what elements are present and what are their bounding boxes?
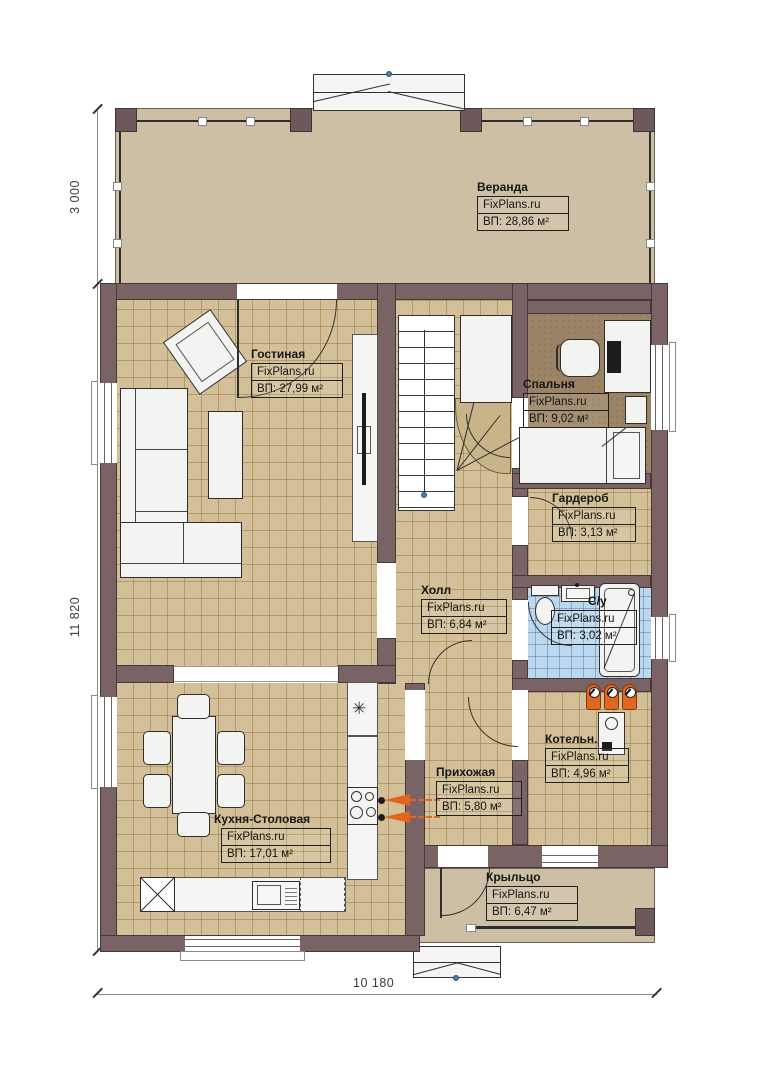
gas-line-dashed [410, 816, 440, 818]
room-label-hall: Холл FixPlans.ru ВП: 6,84 м² [421, 583, 507, 634]
watermark: FixPlans.ru [546, 749, 628, 765]
room-area: ВП: 9,02 м² [524, 410, 608, 427]
room-label-veranda: Веранда FixPlans.ru ВП: 28,86 м² [477, 180, 569, 231]
watermark: FixPlans.ru [222, 829, 330, 845]
burner [350, 806, 363, 819]
stair-direction-line [424, 330, 425, 495]
gas-manifold-icon [622, 684, 637, 710]
dining-chair [177, 694, 210, 719]
window-bathroom [651, 617, 668, 659]
window-bedroom [651, 345, 668, 430]
stair-direction-node [421, 492, 427, 498]
gas-flame-icon [384, 811, 410, 823]
room-info-box: FixPlans.ru ВП: 3,02 м² [551, 610, 637, 645]
dining-chair [217, 774, 245, 808]
wall-living-kitchen-a [116, 665, 174, 683]
room-area: ВП: 3,13 м² [553, 524, 635, 541]
veranda-post [115, 108, 137, 132]
wall-living-hall-a [377, 283, 396, 563]
room-label-entry: Прихожая FixPlans.ru ВП: 5,80 м² [436, 765, 522, 816]
dining-chair [143, 774, 171, 808]
passage-living-kitchen [174, 666, 338, 682]
room-info-box: FixPlans.ru ВП: 9,02 м² [523, 393, 609, 428]
kitchen-counter [347, 824, 378, 880]
room-info-box: FixPlans.ru ВП: 28,86 м² [477, 196, 569, 231]
room-name: Холл [421, 583, 507, 598]
burner [366, 807, 376, 817]
porch-post [635, 908, 655, 936]
watermark: FixPlans.ru [524, 394, 608, 410]
room-label-living: Гостиная FixPlans.ru ВП: 27,99 м² [251, 347, 343, 398]
bed-blanket-line [606, 428, 607, 483]
kitchen-counter [347, 736, 378, 788]
wall-living-kitchen-b [338, 665, 396, 683]
room-area: ВП: 4,96 м² [546, 765, 628, 782]
room-label-wardrobe: Гардероб FixPlans.ru ВП: 3,13 м² [552, 491, 636, 542]
dining-chair [177, 812, 210, 837]
veranda-railing [137, 120, 292, 122]
room-info-box: FixPlans.ru ВП: 17,01 м² [221, 828, 331, 863]
watermark: FixPlans.ru [553, 508, 635, 524]
sofa-front-line [121, 563, 241, 564]
desk-chair-seat [560, 339, 600, 377]
room-label-boiler: Котельн. FixPlans.ru ВП: 4,96 м² [545, 732, 629, 783]
window-sill [180, 951, 305, 961]
room-info-box: FixPlans.ru ВП: 4,96 м² [545, 748, 629, 783]
sink-drainboard [285, 885, 297, 905]
watermark: FixPlans.ru [478, 197, 568, 213]
dining-chair [217, 731, 245, 765]
railing-baluster [523, 117, 532, 126]
room-info-box: FixPlans.ru ВП: 27,99 м² [251, 363, 343, 398]
door-opening-living-hall [377, 563, 396, 638]
armchair-seat-line [175, 322, 234, 383]
dim-line-left [97, 110, 98, 952]
boiler-dial [605, 717, 618, 730]
vent-symbol: ✳ [352, 700, 366, 717]
steps-node [386, 71, 392, 77]
window-sill [91, 695, 98, 789]
railing-baluster [113, 239, 122, 248]
veranda-post [290, 108, 312, 132]
room-area: ВП: 28,86 м² [478, 213, 568, 230]
desk-chair-back [556, 344, 562, 372]
dim-line-bottom [97, 994, 657, 995]
room-name: Котельн. [545, 732, 629, 747]
railing-baluster [466, 924, 476, 932]
veranda-post [460, 108, 482, 132]
kitchen-sink [252, 881, 300, 910]
room-name: Кухня-Столовая [214, 812, 331, 827]
dim-label-house-width: 10 180 [353, 976, 394, 990]
room-name: Веранда [477, 180, 569, 195]
railing-baluster [646, 239, 655, 248]
porch-railing [470, 926, 648, 929]
window-sill [669, 342, 676, 432]
sofa-cushion-line [135, 511, 187, 512]
railing-baluster [113, 182, 122, 191]
door-opening-wardrobe [512, 497, 528, 545]
sofa-chaise [120, 522, 242, 578]
window-porch-wall [542, 846, 598, 867]
coffee-table [208, 411, 243, 499]
fridge-space [140, 877, 175, 912]
room-name: Спальня [523, 377, 609, 392]
dim-tick [92, 988, 102, 998]
dining-table [172, 716, 216, 814]
window-living [100, 383, 117, 463]
door-opening-porch [438, 846, 488, 867]
dishwasher-space [300, 877, 345, 912]
washbasin-tap [575, 583, 579, 587]
room-label-kitchen: Кухня-Столовая FixPlans.ru ВП: 17,01 м² [214, 812, 331, 863]
door-opening-kitchen-entry [405, 690, 425, 760]
sofa-cushion-line [135, 449, 187, 450]
veranda-post [633, 108, 655, 132]
room-area: ВП: 6,84 м² [422, 616, 506, 633]
sink-bowl [257, 885, 281, 905]
room-area: ВП: 17,01 м² [222, 845, 330, 862]
dining-chair [143, 731, 171, 765]
staircase [398, 315, 455, 511]
railing-baluster [198, 117, 207, 126]
window-kitchen-bottom [185, 936, 300, 951]
dim-tick [651, 988, 661, 998]
room-info-box: FixPlans.ru ВП: 5,80 м² [436, 781, 522, 816]
room-name: Гостиная [251, 347, 343, 362]
wall-center-spine [512, 545, 528, 600]
watermark: FixPlans.ru [437, 782, 521, 798]
veranda-railing [119, 112, 121, 284]
floor-plan: 3 000 11 820 10 180 [0, 0, 763, 1080]
dim-label-veranda-depth: 3 000 [68, 162, 82, 232]
room-area: ВП: 5,80 м² [437, 798, 521, 815]
window-sill [91, 381, 98, 465]
door-opening-veranda [237, 284, 337, 299]
stove [347, 787, 378, 825]
room-info-box: FixPlans.ru ВП: 6,84 м² [421, 599, 507, 634]
dim-label-house-height: 11 820 [68, 582, 82, 652]
room-name: С/у [588, 594, 637, 609]
watermark: FixPlans.ru [252, 364, 342, 380]
steps-node [453, 975, 459, 981]
room-area: ВП: 27,99 м² [252, 380, 342, 397]
railing-baluster [646, 182, 655, 191]
gas-manifold-icon [604, 684, 619, 710]
room-area: ВП: 3,02 м² [552, 627, 636, 644]
burner [365, 792, 374, 801]
watermark: FixPlans.ru [487, 887, 577, 903]
room-name: Прихожая [436, 765, 522, 780]
room-label-bedroom: Спальня FixPlans.ru ВП: 9,02 м² [523, 377, 609, 428]
window-sill [669, 614, 676, 662]
veranda-railing [482, 120, 634, 122]
pillow [613, 432, 640, 479]
hall-closet [460, 315, 512, 403]
room-name: Гардероб [552, 491, 636, 506]
room-info-box: FixPlans.ru ВП: 3,13 м² [552, 507, 636, 542]
bedside-cabinet [625, 396, 647, 424]
gas-flame-icon [384, 794, 410, 806]
gas-manifold-icon [586, 684, 601, 710]
door-opening-bathroom [512, 600, 528, 660]
railing-baluster [580, 117, 589, 126]
railing-baluster [246, 117, 255, 126]
veranda-railing [649, 112, 651, 284]
room-label-porch: Крыльцо FixPlans.ru ВП: 6,47 м² [486, 870, 578, 921]
watermark: FixPlans.ru [552, 611, 636, 627]
room-info-box: FixPlans.ru ВП: 6,47 м² [486, 886, 578, 921]
tv-screen [362, 393, 366, 485]
wall-bedroom-furring [512, 300, 651, 314]
monitor [607, 341, 621, 373]
watermark: FixPlans.ru [422, 600, 506, 616]
room-label-bathroom: С/у FixPlans.ru ВП: 3,02 м² [551, 594, 637, 645]
sofa-cushion-line [183, 523, 184, 563]
burner [351, 791, 362, 802]
veranda-floor [115, 108, 655, 285]
window-kitchen-left [100, 697, 117, 787]
room-name: Крыльцо [486, 870, 578, 885]
room-area: ВП: 6,47 м² [487, 903, 577, 920]
